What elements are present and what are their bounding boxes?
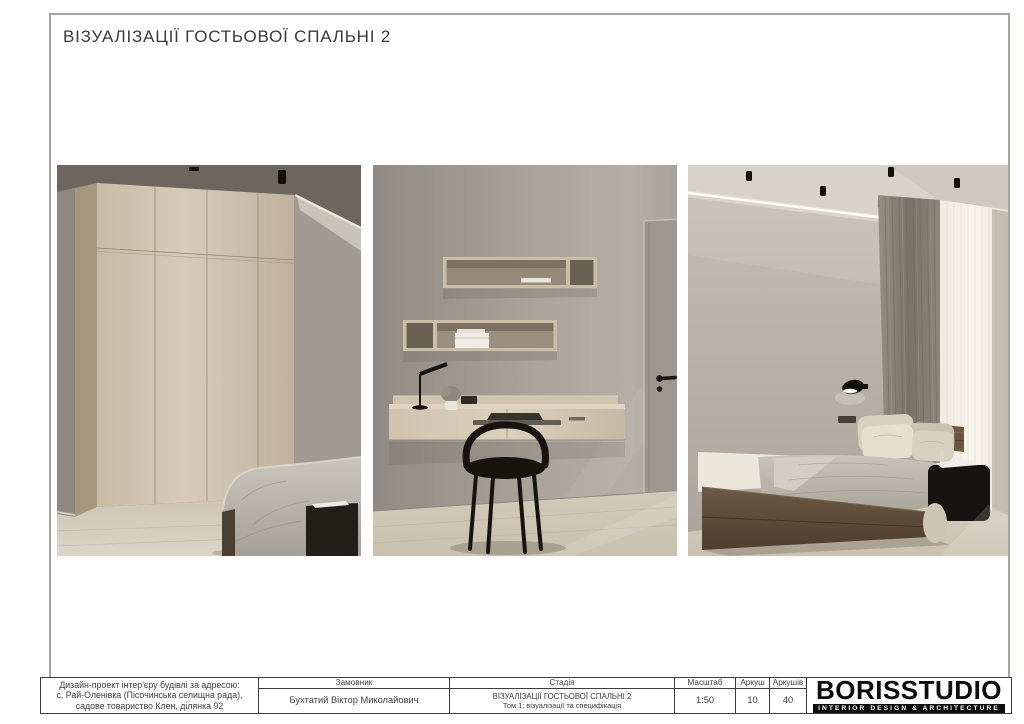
render-wardrobe-view (57, 165, 361, 556)
ceiling-spot (189, 167, 199, 171)
project-address-line3: садове товариство Клен, ділянка 92 (76, 701, 224, 712)
laptop (487, 413, 543, 420)
drawing-sheet: ВІЗУАЛІЗАЦІЇ ГОСТЬОВОЇ СПАЛЬНІ 2 (0, 0, 1024, 724)
lower-shelf (403, 320, 557, 362)
project-address-line1: Дизайн-проект інтер'єру будівлі за адрес… (59, 680, 239, 691)
sheet-label: Аркуш (735, 678, 769, 689)
desk-item (569, 417, 585, 421)
client-label: Замовник (258, 678, 449, 689)
stage-label: Стадія (449, 678, 674, 689)
client-name: Бухтатий Віктор Миколайович (258, 689, 449, 713)
bed-render-graphic (688, 165, 1008, 556)
stage-value-line2: Том 1: візуалізації та специфікація (503, 701, 621, 711)
left-wall (57, 189, 75, 517)
desk-render-graphic (373, 165, 677, 556)
books (455, 333, 489, 348)
studio-logo-wordmark: BORISSTUDIO (816, 679, 1002, 703)
wardrobe-render-graphic (57, 165, 361, 556)
scale-label: Масштаб (674, 678, 735, 689)
studio-logo-tagline: INTERIOR DESIGN & ARCHITECTURE (813, 704, 1005, 714)
pillow (911, 430, 955, 462)
chair-shadow (450, 541, 566, 555)
door (644, 219, 677, 493)
door-lock (657, 386, 663, 392)
sheer-curtain (992, 209, 1008, 517)
sheet-number: 10 (735, 689, 769, 713)
power-socket (461, 396, 477, 404)
project-address-line2: с. Рай-Оленівка (Пісочинська селищна рад… (56, 690, 242, 701)
sheets-total-number: 40 (769, 689, 806, 713)
sheets-total-label: Аркушів (769, 678, 806, 689)
title-block: Дизайн-проект інтер'єру будівлі за адрес… (40, 677, 1012, 714)
upper-shelf (443, 257, 597, 299)
render-bed-window-view (688, 165, 1008, 556)
page-title: ВІЗУАЛІЗАЦІЇ ГОСТЬОВОЇ СПАЛЬНІ 2 (63, 27, 391, 47)
studio-logo: BORISSTUDIO INTERIOR DESIGN & ARCHITECTU… (806, 678, 1011, 713)
power-socket (838, 416, 856, 423)
pillow (861, 423, 915, 461)
scale-value: 1:50 (674, 689, 735, 713)
project-address: Дизайн-проект інтер'єру будівлі за адрес… (41, 678, 258, 713)
nightstand (306, 501, 358, 556)
ceiling-spot (278, 170, 286, 184)
render-desk-view (373, 165, 677, 556)
stage-value-line1: ВІЗУАЛІЗАЦІЇ ГОСТЬОВОЇ СПАЛЬНІ 2 (493, 692, 632, 702)
stage-value: ВІЗУАЛІЗАЦІЇ ГОСТЬОВОЇ СПАЛЬНІ 2 Том 1: … (449, 689, 674, 713)
glass (940, 451, 944, 462)
